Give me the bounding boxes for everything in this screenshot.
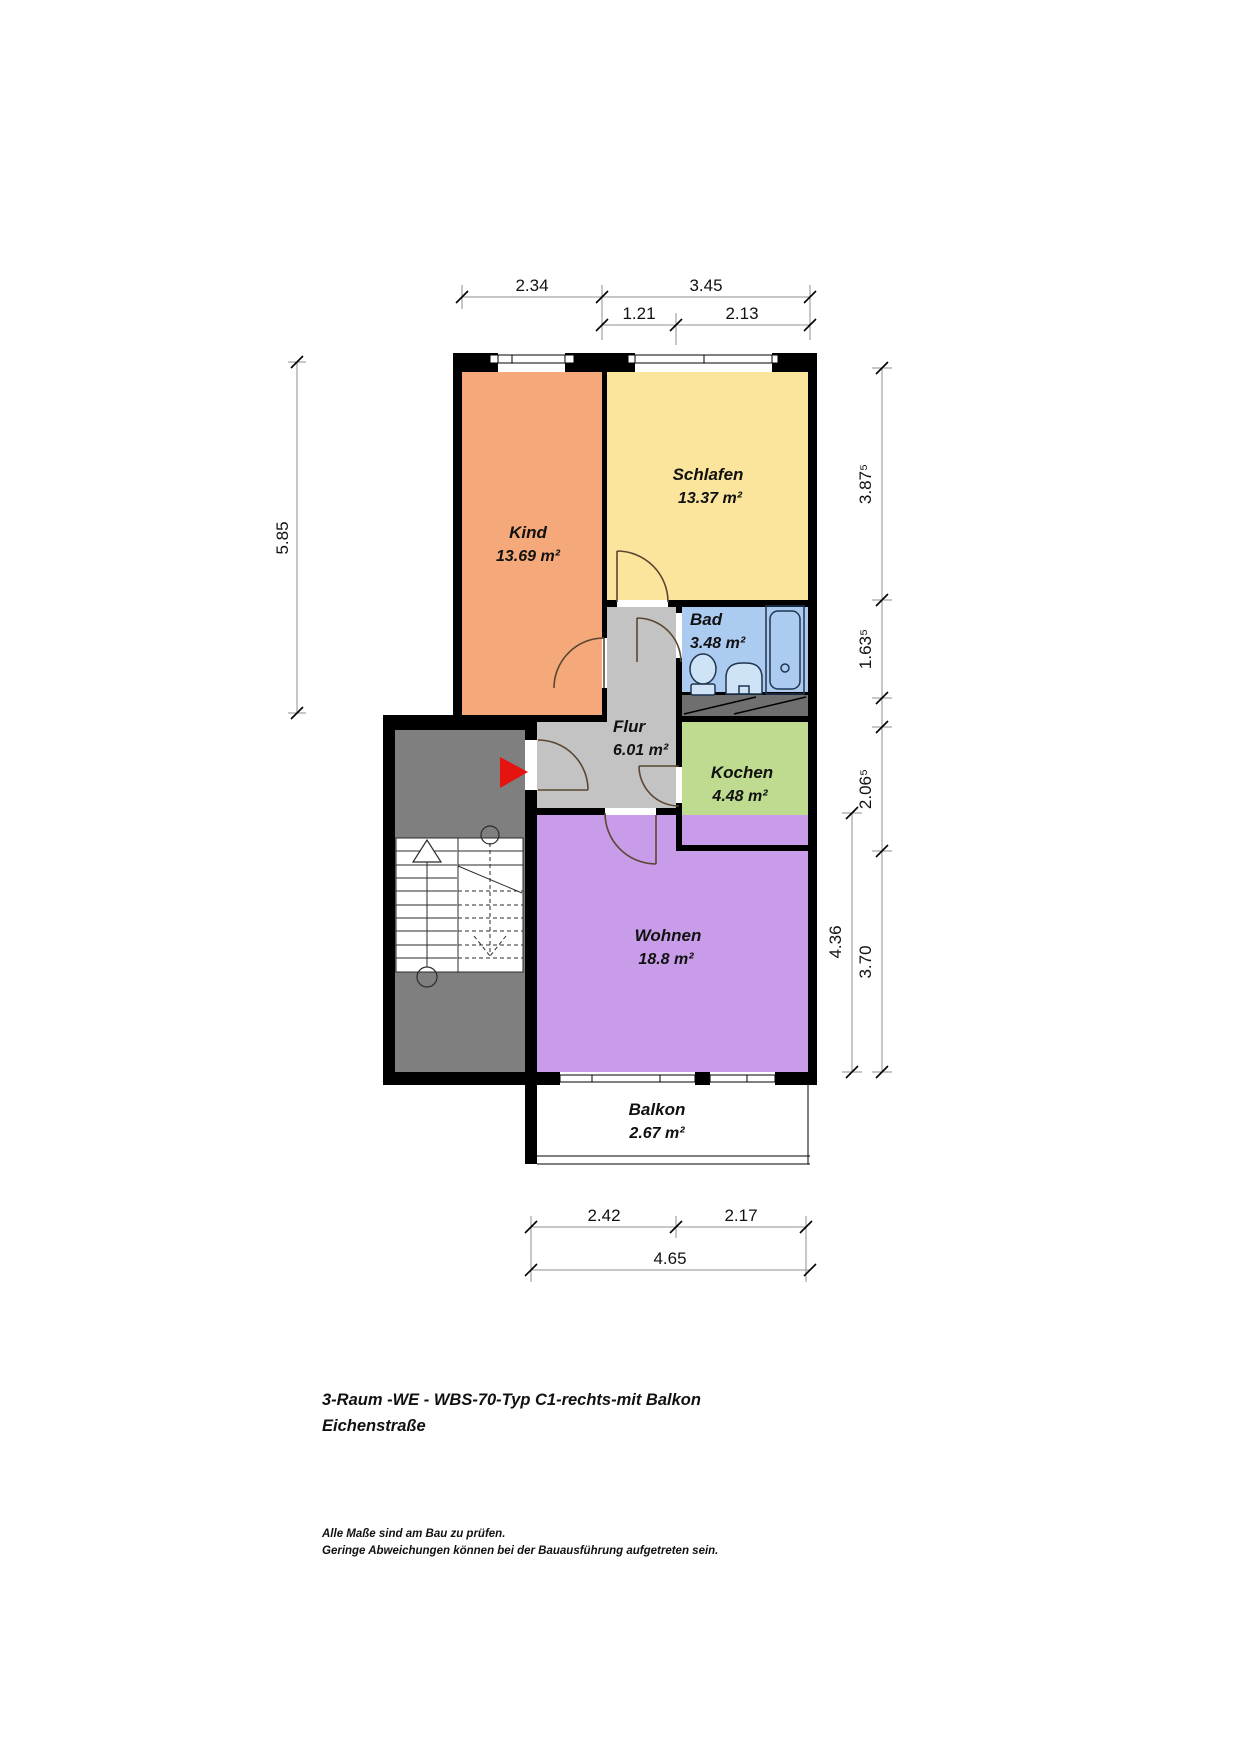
window-frame <box>560 1075 695 1082</box>
note-line-1: Alle Maße sind am Bau zu prüfen. <box>321 1528 505 1540</box>
wall-segment <box>676 803 682 845</box>
room-wohnen-label: Wohnen <box>635 926 702 945</box>
wall-segment <box>808 353 817 1085</box>
room-flur-label: Flur <box>613 717 646 736</box>
installation-shaft <box>682 695 808 716</box>
room-kind <box>462 372 602 715</box>
dim-label: 1.21 <box>622 304 655 323</box>
wall-segment <box>537 808 605 815</box>
staircase <box>396 826 523 987</box>
wall-segment <box>525 790 537 1072</box>
window-frame <box>490 355 574 363</box>
window-wohnen <box>710 1072 775 1085</box>
door-opening <box>676 767 682 803</box>
dim-label: 3.87⁵ <box>856 464 875 504</box>
dim-label: 2.34 <box>515 276 548 295</box>
window-kind <box>490 353 574 372</box>
wall-segment <box>602 372 607 638</box>
wall-segment <box>676 845 817 851</box>
room-bad-area: 3.48 m² <box>690 635 746 652</box>
door-opening <box>605 808 656 815</box>
room-bad-label: Bad <box>690 610 723 629</box>
wall-segment <box>656 808 676 815</box>
room-balkon-area: 2.67 m² <box>628 1125 685 1142</box>
door-opening <box>525 740 537 790</box>
window-frame <box>710 1075 775 1082</box>
toilet-cistern-icon <box>691 684 715 695</box>
wall-segment <box>676 600 682 613</box>
room-flur <box>537 722 676 808</box>
window-frame <box>628 355 778 363</box>
wall-segment <box>775 1072 817 1085</box>
dim-label: 3.45 <box>689 276 722 295</box>
note-line-2: Geringe Abweichungen können bei der Baua… <box>322 1545 718 1557</box>
wall-segment <box>383 715 537 730</box>
dim-label: 4.65 <box>653 1249 686 1268</box>
room-schlafen-area: 13.37 m² <box>678 490 743 507</box>
wall-segment <box>383 715 395 1085</box>
room-schlafen-label: Schlafen <box>673 465 744 484</box>
room-kind-area: 13.69 m² <box>496 548 561 565</box>
room-kochen-label: Kochen <box>711 763 773 782</box>
window-balcony-door <box>560 1072 695 1085</box>
plan-subtitle: Eichenstraße <box>322 1417 426 1435</box>
wall-segment <box>383 1072 560 1085</box>
room-wohnen-area: 18.8 m² <box>638 951 694 968</box>
dim-label: 3.70 <box>856 945 875 978</box>
room-flur-vestibule <box>607 607 676 722</box>
wall-segment <box>607 600 617 607</box>
wall-segment <box>682 716 808 722</box>
wall-segment <box>525 1085 537 1164</box>
dim-label: 2.13 <box>725 304 758 323</box>
floor-plan-drawing: 2.34 3.45 1.21 2.13 5.85 3.87⁵ 1.63⁵ 2.0… <box>0 0 1240 1754</box>
wall-segment <box>565 353 635 372</box>
door-opening <box>617 600 668 607</box>
wall-segment <box>695 1072 710 1085</box>
dim-label: 2.42 <box>587 1206 620 1225</box>
dim-label: 5.85 <box>273 521 292 554</box>
room-flur-area: 6.01 m² <box>613 742 669 759</box>
dim-label: 2.17 <box>724 1206 757 1225</box>
room-schlafen <box>607 372 808 600</box>
wall-segment <box>453 353 462 722</box>
dim-label: 2.06⁵ <box>856 769 875 809</box>
toilet-icon <box>690 654 716 684</box>
room-kind-label: Kind <box>509 523 547 542</box>
dim-label: 1.63⁵ <box>856 629 875 669</box>
room-kochen-area: 4.48 m² <box>711 788 768 805</box>
floor-plan-page: 2.34 3.45 1.21 2.13 5.85 3.87⁵ 1.63⁵ 2.0… <box>0 0 1240 1754</box>
dim-label: 4.36 <box>826 925 845 958</box>
sink-icon <box>726 663 762 694</box>
wall-segment <box>525 722 537 740</box>
room-balkon-label: Balkon <box>629 1100 686 1119</box>
wall-segment <box>676 658 682 767</box>
plan-title: 3-Raum -WE - WBS-70-Typ C1-rechts-mit Ba… <box>322 1391 701 1409</box>
window-schlafen <box>628 353 778 372</box>
